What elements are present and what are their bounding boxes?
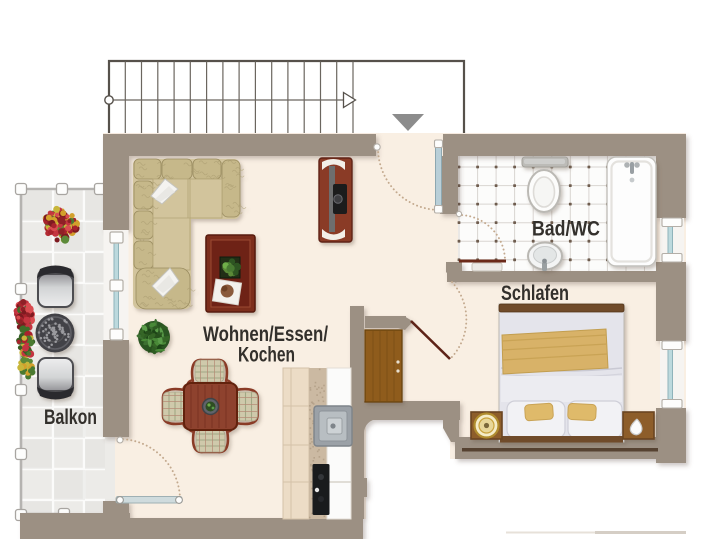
svg-text:Bad/WC: Bad/WC (532, 217, 600, 241)
svg-text:Balkon: Balkon (44, 405, 97, 429)
svg-text:Schlafen: Schlafen (501, 281, 569, 305)
svg-text:Kochen: Kochen (238, 343, 295, 367)
